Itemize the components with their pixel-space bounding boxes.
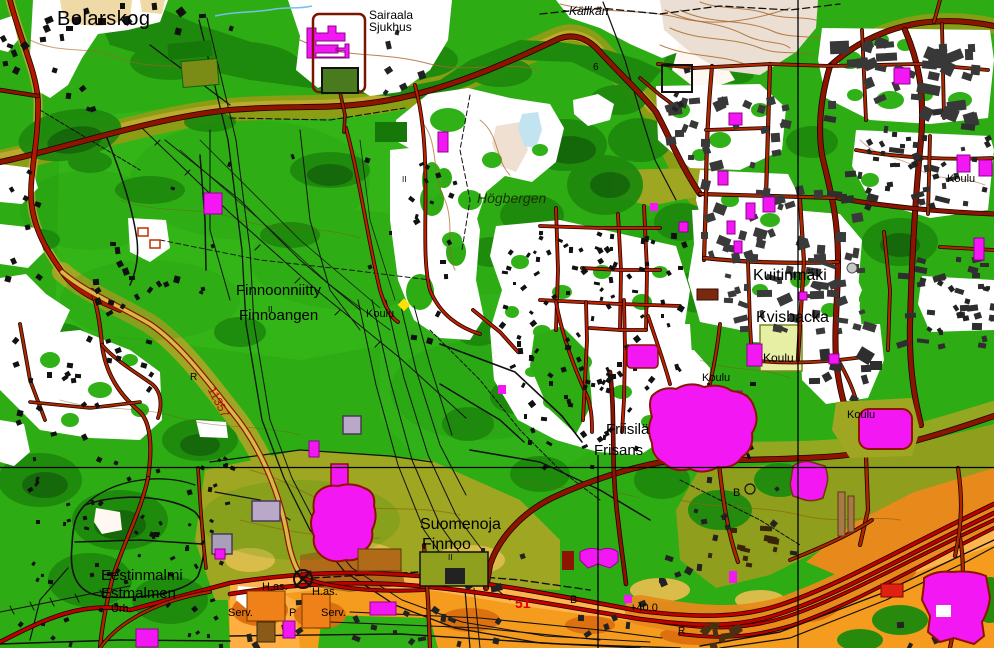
svg-text:Suomenoja: Suomenoja [420,516,501,533]
svg-text:Serv.: Serv. [321,607,346,619]
svg-text:Serv.: Serv. [228,607,253,619]
svg-text:II: II [448,553,452,562]
svg-text:6: 6 [593,62,599,73]
svg-text:H.as.: H.as. [312,586,338,598]
svg-text:R: R [678,626,685,637]
svg-text:II: II [402,175,406,184]
svg-text:R: R [190,372,197,383]
svg-text:B: B [570,594,577,606]
svg-text:~Källkärr: ~Källkärr [562,4,611,18]
svg-text:Kvisbacka: Kvisbacka [756,309,829,326]
svg-text:Sjukhus: Sjukhus [369,20,412,34]
svg-text:Högbergen: Högbergen [477,190,546,206]
svg-text:Eestinmalmi: Eestinmalmi [101,567,183,584]
svg-text:Koulu: Koulu [366,308,394,320]
svg-text:Frisans: Frisans [594,442,643,459]
svg-text:Finnoonniitty: Finnoonniitty [236,282,322,299]
svg-text:II: II [268,305,272,314]
svg-text:B: B [733,487,740,499]
svg-text:+40.0: +40.0 [630,602,658,614]
svg-text:H.as.: H.as. [262,581,288,593]
svg-text:Koulu: Koulu [847,409,875,421]
svg-text:Urh.: Urh. [111,603,132,615]
svg-text:Friisilä: Friisilä [606,421,650,438]
svg-text:51: 51 [515,595,531,611]
svg-text:Kuitinmäki: Kuitinmäki [753,267,827,284]
svg-text:P: P [289,607,296,619]
svg-text:Finnoangen: Finnoangen [239,307,318,324]
svg-text:Koulu: Koulu [763,351,794,365]
svg-text:Bolarskog: Bolarskog [57,8,150,30]
svg-text:Koulu: Koulu [702,372,730,384]
svg-text:Estmalmen: Estmalmen [101,585,176,602]
svg-text:Finnoo: Finnoo [422,536,471,553]
svg-text:Koulu: Koulu [947,173,975,185]
